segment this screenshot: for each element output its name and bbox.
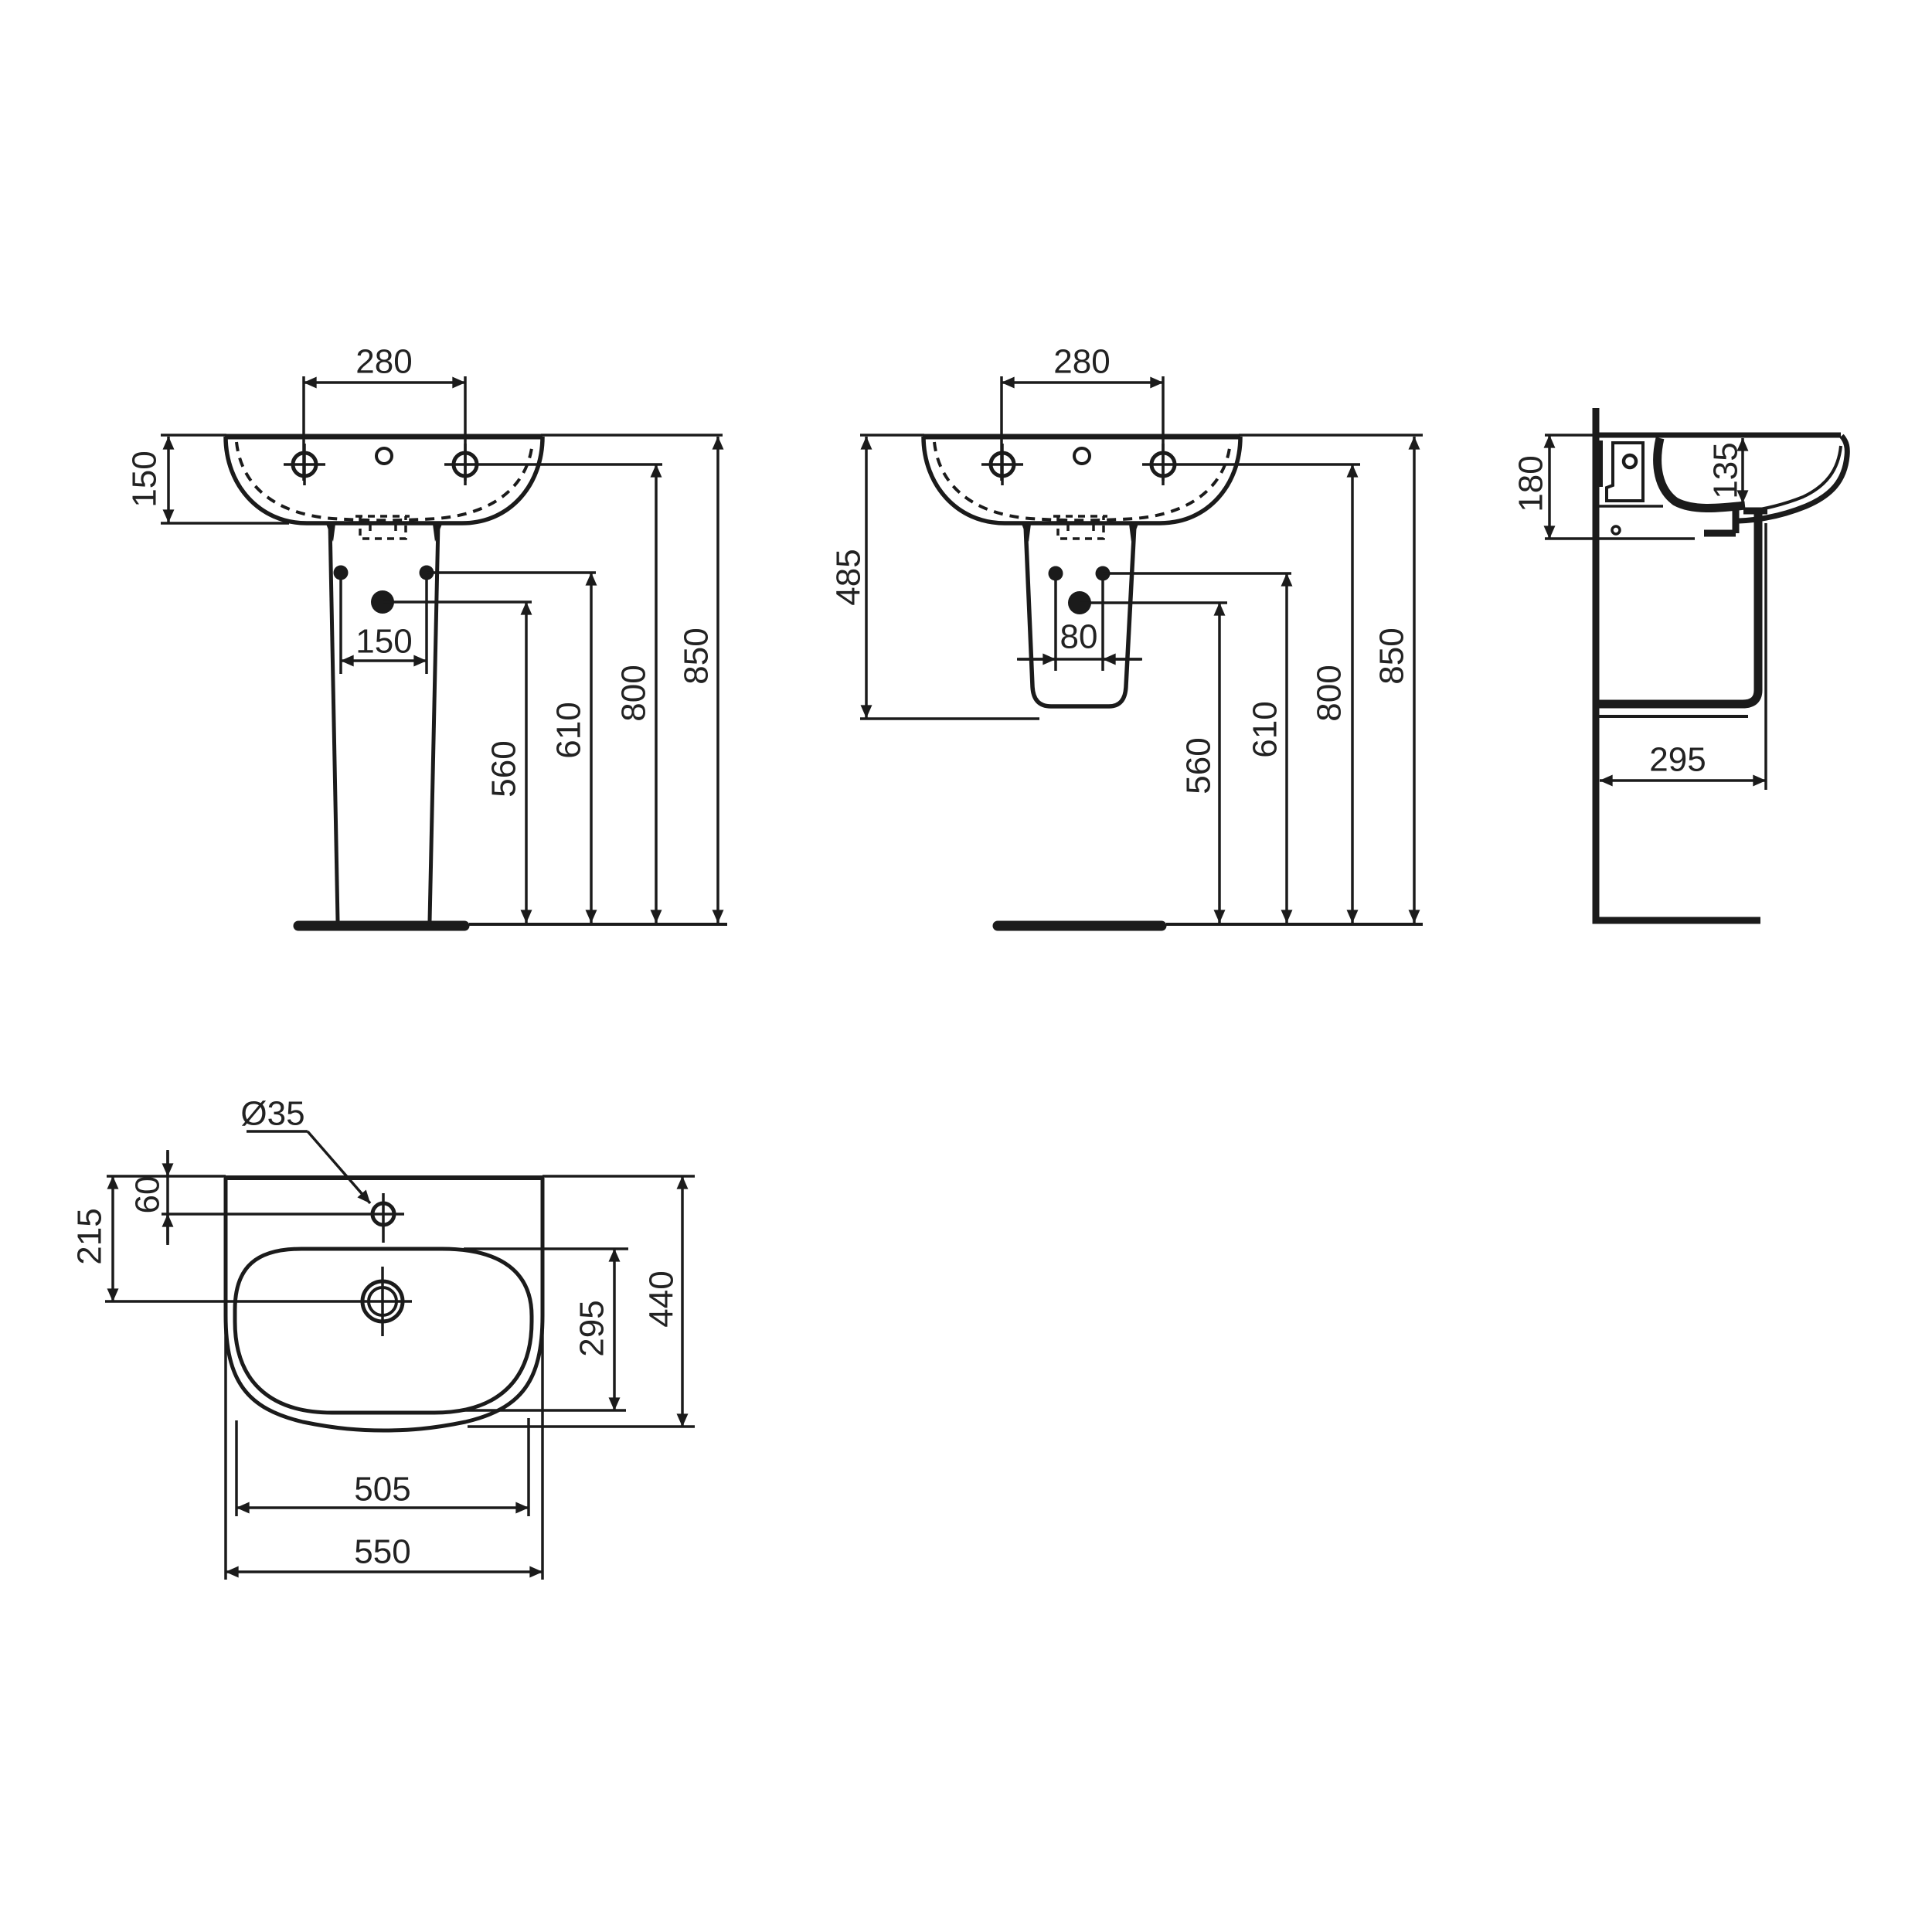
svg-text:800: 800 bbox=[615, 665, 653, 721]
svg-text:800: 800 bbox=[1311, 665, 1349, 721]
svg-text:295: 295 bbox=[573, 1300, 611, 1356]
svg-text:850: 850 bbox=[1373, 628, 1411, 684]
svg-text:610: 610 bbox=[550, 702, 588, 758]
svg-text:150: 150 bbox=[126, 451, 164, 507]
svg-text:550: 550 bbox=[354, 1533, 410, 1571]
svg-text:610: 610 bbox=[1247, 701, 1284, 757]
svg-text:280: 280 bbox=[355, 343, 412, 381]
svg-text:60: 60 bbox=[129, 1176, 167, 1214]
svg-text:150: 150 bbox=[355, 623, 412, 661]
svg-text:485: 485 bbox=[830, 549, 868, 605]
svg-text:Ø35: Ø35 bbox=[240, 1095, 304, 1133]
svg-text:135: 135 bbox=[1707, 442, 1745, 498]
svg-text:440: 440 bbox=[643, 1270, 681, 1327]
svg-text:850: 850 bbox=[678, 628, 716, 684]
svg-text:215: 215 bbox=[71, 1208, 109, 1264]
svg-text:280: 280 bbox=[1053, 343, 1110, 381]
svg-text:80: 80 bbox=[1060, 618, 1098, 656]
svg-text:560: 560 bbox=[1180, 737, 1218, 794]
svg-text:295: 295 bbox=[1649, 741, 1706, 779]
svg-text:505: 505 bbox=[354, 1471, 410, 1509]
svg-text:560: 560 bbox=[485, 740, 523, 797]
svg-text:180: 180 bbox=[1512, 455, 1550, 512]
